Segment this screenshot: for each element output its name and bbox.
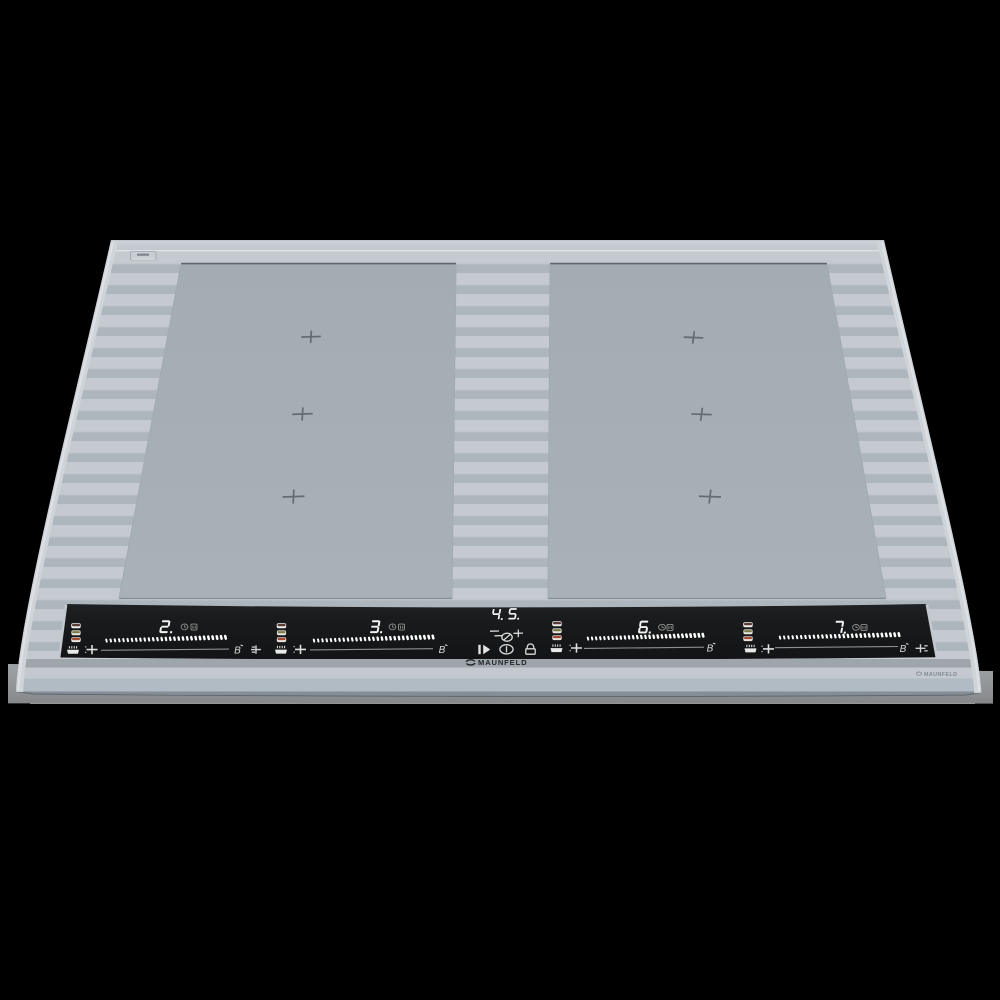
svg-text:B: B [234,645,241,656]
svg-text:B: B [439,645,446,656]
svg-text:MAUNFELD: MAUNFELD [478,658,527,667]
svg-text:B: B [707,643,714,654]
svg-text:B: B [900,644,907,655]
svg-text:MAUNFELD: MAUNFELD [924,672,957,678]
